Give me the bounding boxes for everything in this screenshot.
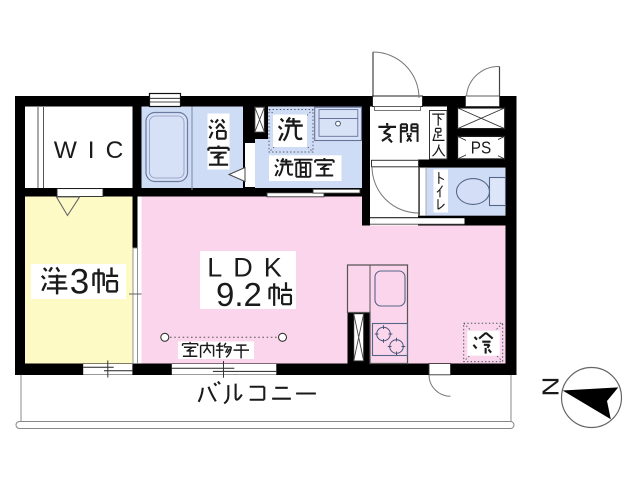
svg-text:3: 3 [70, 263, 89, 302]
svg-text:WIC: WIC [54, 137, 135, 164]
svg-text:PS: PS [471, 137, 491, 157]
svg-text:N: N [539, 377, 564, 397]
svg-text:9.2: 9.2 [216, 276, 262, 313]
